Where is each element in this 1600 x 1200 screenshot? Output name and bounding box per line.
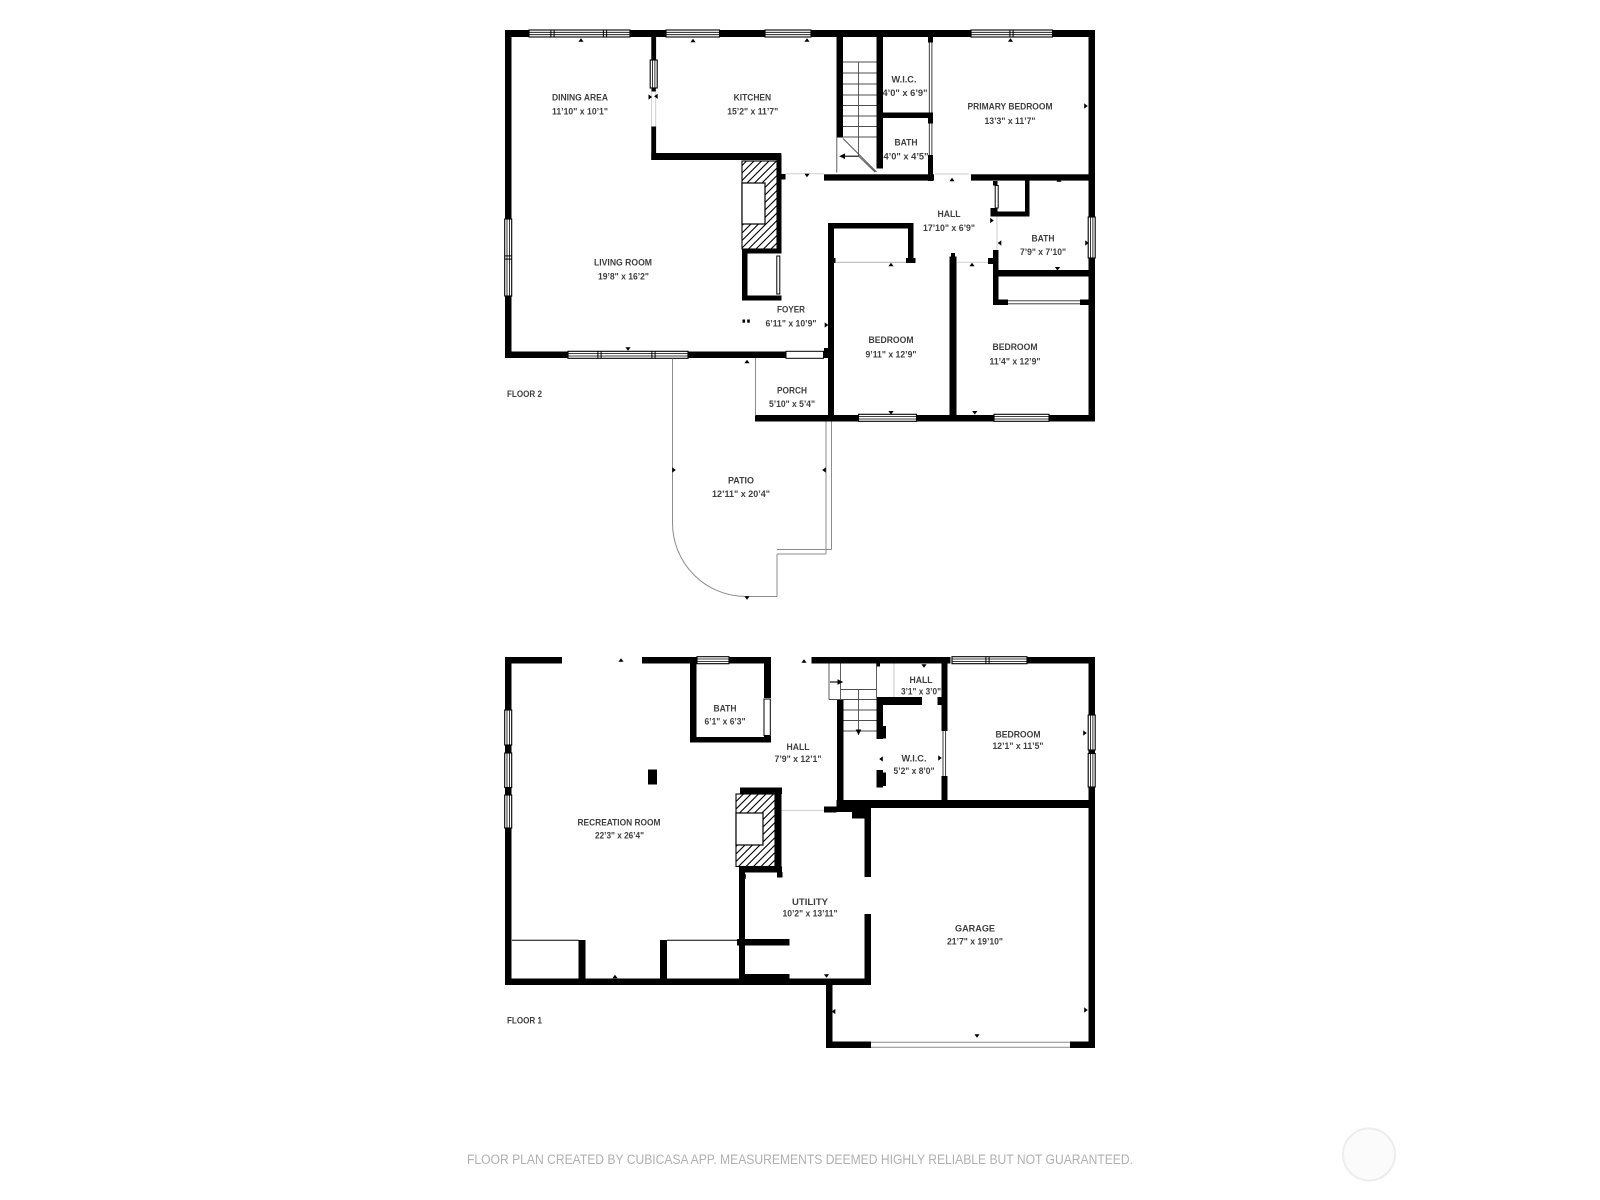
svg-text:LIVING ROOM: LIVING ROOM	[594, 258, 652, 269]
svg-text:PORCH: PORCH	[777, 386, 807, 397]
svg-text:PATIO: PATIO	[728, 476, 755, 487]
svg-text:FOYER: FOYER	[777, 305, 805, 316]
svg-text:13’3" x 11’7": 13’3" x 11’7"	[985, 116, 1036, 127]
svg-text:4’0" x 6’9": 4’0" x 6’9"	[883, 88, 928, 99]
svg-text:11’10" x 10’1": 11’10" x 10’1"	[552, 106, 608, 117]
svg-text:21’7" x 19’10": 21’7" x 19’10"	[947, 937, 1003, 948]
svg-text:12’1" x 11’5": 12’1" x 11’5"	[993, 741, 1044, 752]
svg-text:W.I.C.: W.I.C.	[902, 754, 927, 765]
svg-text:UTILITY: UTILITY	[792, 897, 829, 908]
svg-text:5’2" x 8’0": 5’2" x 8’0"	[894, 766, 935, 777]
svg-text:BEDROOM: BEDROOM	[996, 729, 1041, 740]
svg-text:FLOOR 1: FLOOR 1	[507, 1016, 543, 1027]
svg-text:BATH: BATH	[895, 138, 918, 149]
svg-text:6’11" x 10’9": 6’11" x 10’9"	[766, 319, 817, 330]
svg-text:15’2" x 11’7": 15’2" x 11’7"	[727, 107, 778, 118]
svg-text:19’8" x 16’2": 19’8" x 16’2"	[598, 272, 649, 283]
svg-text:7’9" x 12’1": 7’9" x 12’1"	[775, 754, 822, 765]
svg-text:FLOOR 2: FLOOR 2	[507, 389, 542, 400]
svg-text:BEDROOM: BEDROOM	[993, 342, 1038, 353]
svg-text:3’1" x 3’0": 3’1" x 3’0"	[901, 687, 941, 698]
svg-text:KITCHEN: KITCHEN	[734, 93, 772, 104]
svg-text:12’11" x 20’4": 12’11" x 20’4"	[712, 489, 770, 500]
svg-text:4’0" x 4’5": 4’0" x 4’5"	[884, 152, 929, 163]
svg-text:HALL: HALL	[910, 675, 933, 686]
svg-text:BATH: BATH	[714, 704, 737, 715]
svg-text:HALL: HALL	[938, 209, 961, 220]
svg-text:RECREATION ROOM: RECREATION ROOM	[578, 817, 661, 828]
svg-text:BEDROOM: BEDROOM	[869, 335, 914, 346]
svg-text:11’4" x 12’9": 11’4" x 12’9"	[990, 357, 1041, 368]
svg-text:W.I.C.: W.I.C.	[892, 75, 917, 86]
svg-text:17’10" x 6’9": 17’10" x 6’9"	[923, 223, 975, 234]
svg-text:HALL: HALL	[787, 742, 810, 753]
svg-text:10’2" x 13’11": 10’2" x 13’11"	[783, 909, 838, 920]
svg-text:GARAGE: GARAGE	[955, 924, 996, 935]
svg-text:22’3" x 26’4": 22’3" x 26’4"	[595, 830, 644, 841]
svg-text:DINING AREA: DINING AREA	[552, 93, 608, 104]
svg-text:PRIMARY BEDROOM: PRIMARY BEDROOM	[968, 102, 1053, 113]
svg-text:9’11" x 12’9": 9’11" x 12’9"	[866, 350, 917, 361]
svg-text:5’10" x 5’4": 5’10" x 5’4"	[769, 399, 815, 410]
svg-text:BATH: BATH	[1032, 234, 1055, 245]
svg-text:FLOOR PLAN CREATED BY CUBICASA: FLOOR PLAN CREATED BY CUBICASA APP. MEAS…	[467, 1152, 1133, 1167]
svg-text:6’1" x 6’3": 6’1" x 6’3"	[705, 717, 746, 728]
svg-text:7’9" x 7’10": 7’9" x 7’10"	[1020, 247, 1066, 258]
